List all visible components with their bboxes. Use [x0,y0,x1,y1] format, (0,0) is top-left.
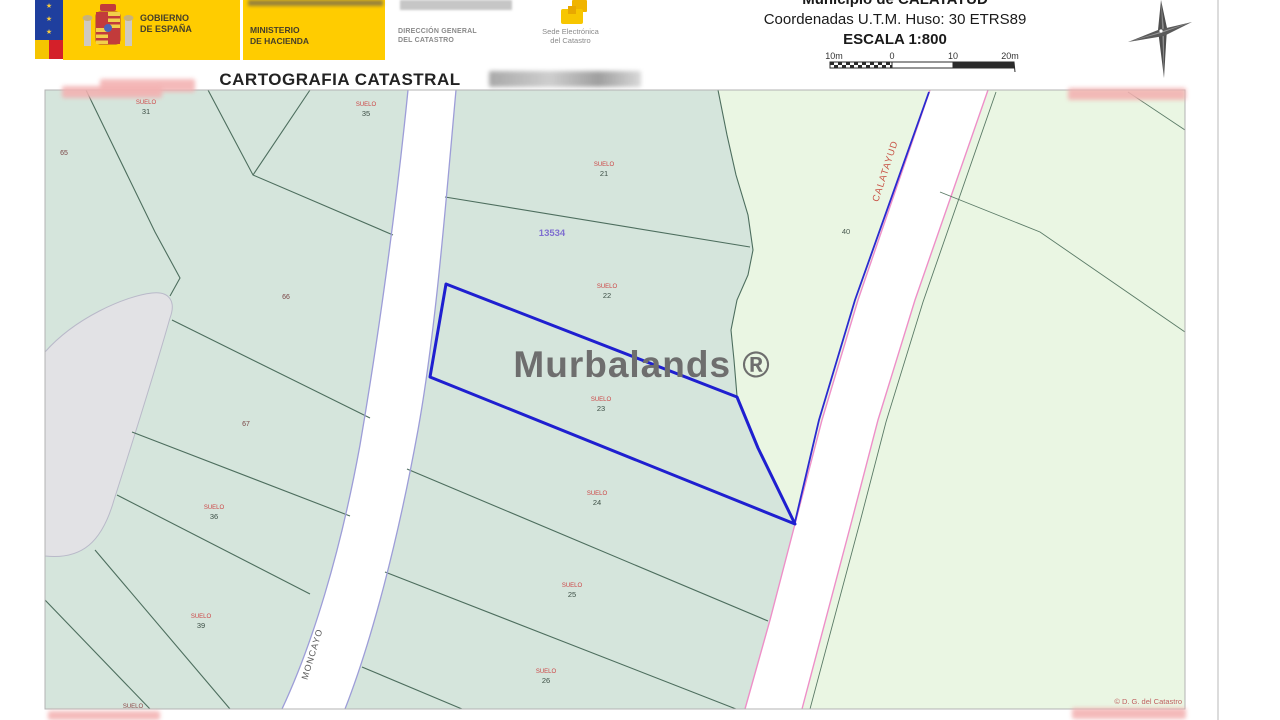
scalebar-label-20m: 20m [1001,51,1019,61]
redacted-reference [489,71,641,87]
svg-text:SUELO: SUELO [591,397,612,403]
svg-text:31: 31 [142,107,150,116]
polygon-number: 13534 [539,228,566,239]
spain-flag-yellow [35,40,49,59]
spain-flag-red [49,40,63,59]
dgc-line1: DIRECCIÓN GENERAL [398,28,477,35]
sede-line2: del Catastro [550,36,590,45]
sede-electronica-icon [556,0,592,26]
watermark: Murbalands ® [513,344,770,385]
scalebar-label-10: 10 [948,51,958,61]
plot-label-67: 67 [242,421,250,428]
scale-text: ESCALA 1:800 [745,31,1045,48]
ministerio-line1: MINISTERIO [250,25,300,35]
utm-coordinates: Coordenadas U.T.M. Huso: 30 ETRS89 [745,11,1045,28]
scalebar-label-0: 0 [889,51,894,61]
document-title: CARTOGRAFIA CATASTRAL [200,70,480,90]
redacted-coordinate-bottom-right [1072,708,1186,719]
plot-label-65: 65 [60,150,68,157]
scale-bar: 10m 0 10 20m [822,50,1022,74]
svg-text:SUELO: SUELO [356,102,377,108]
dgc-line2: DEL CATASTRO [398,37,454,44]
gobierno-line1: GOBIERNO [140,13,189,23]
svg-text:39: 39 [197,621,205,630]
svg-text:35: 35 [362,109,370,118]
svg-text:26: 26 [542,676,550,685]
cadastral-map-document: SUELO 21 SUELO 22 SUELO 23 SUELO 24 SUEL… [0,0,1280,720]
scalebar-label-10m-left: 10m [825,51,843,61]
gobierno-label: GOBIERNO DE ESPAÑA [140,13,240,35]
sede-line1: Sede Electrónica [542,27,599,36]
svg-text:24: 24 [593,498,601,507]
svg-text:22: 22 [603,291,611,300]
ministerio-label: MINISTERIO DE HACIENDA [250,25,370,46]
plot-label-40: 40 [842,227,850,236]
svg-text:SUELO: SUELO [536,669,557,675]
svg-text:23: 23 [597,404,605,413]
svg-text:36: 36 [210,512,218,521]
gobierno-line2: DE ESPAÑA [140,24,192,34]
plot-label-66: 66 [282,294,290,301]
svg-text:21: 21 [600,169,608,178]
north-arrow-icon [1128,0,1194,80]
svg-text:SUELO: SUELO [562,583,583,589]
svg-text:25: 25 [568,590,576,599]
copyright-note: © D. G. del Catastro [1114,697,1182,706]
map-canvas: SUELO 21 SUELO 22 SUELO 23 SUELO 24 SUEL… [0,0,1280,720]
svg-text:SUELO: SUELO [191,614,212,620]
redacted-coordinate-top-left [62,86,162,98]
redacted-coordinate-bottom-left [48,711,160,720]
eu-flag-fragment: ★★★ [35,0,63,40]
svg-text:SUELO: SUELO [204,505,225,511]
redacted-coordinate-top-right [1068,88,1186,100]
ministerio-line2: DE HACIENDA [250,36,309,46]
svg-text:SUELO: SUELO [594,162,615,168]
redacted-bar-dgc [400,0,512,10]
sede-label: Sede Electrónica del Catastro [518,27,623,45]
spain-coat-of-arms [82,2,134,58]
redacted-strip-header [248,0,383,6]
municipio-heading: Municipio de CALATAYUD [745,0,1045,8]
logo-divider [240,0,243,60]
svg-text:SUELO: SUELO [136,100,157,106]
svg-text:SUELO: SUELO [597,284,618,290]
dgc-label: DIRECCIÓN GENERAL DEL CATASTRO [398,27,503,45]
svg-text:SUELO: SUELO [587,491,608,497]
